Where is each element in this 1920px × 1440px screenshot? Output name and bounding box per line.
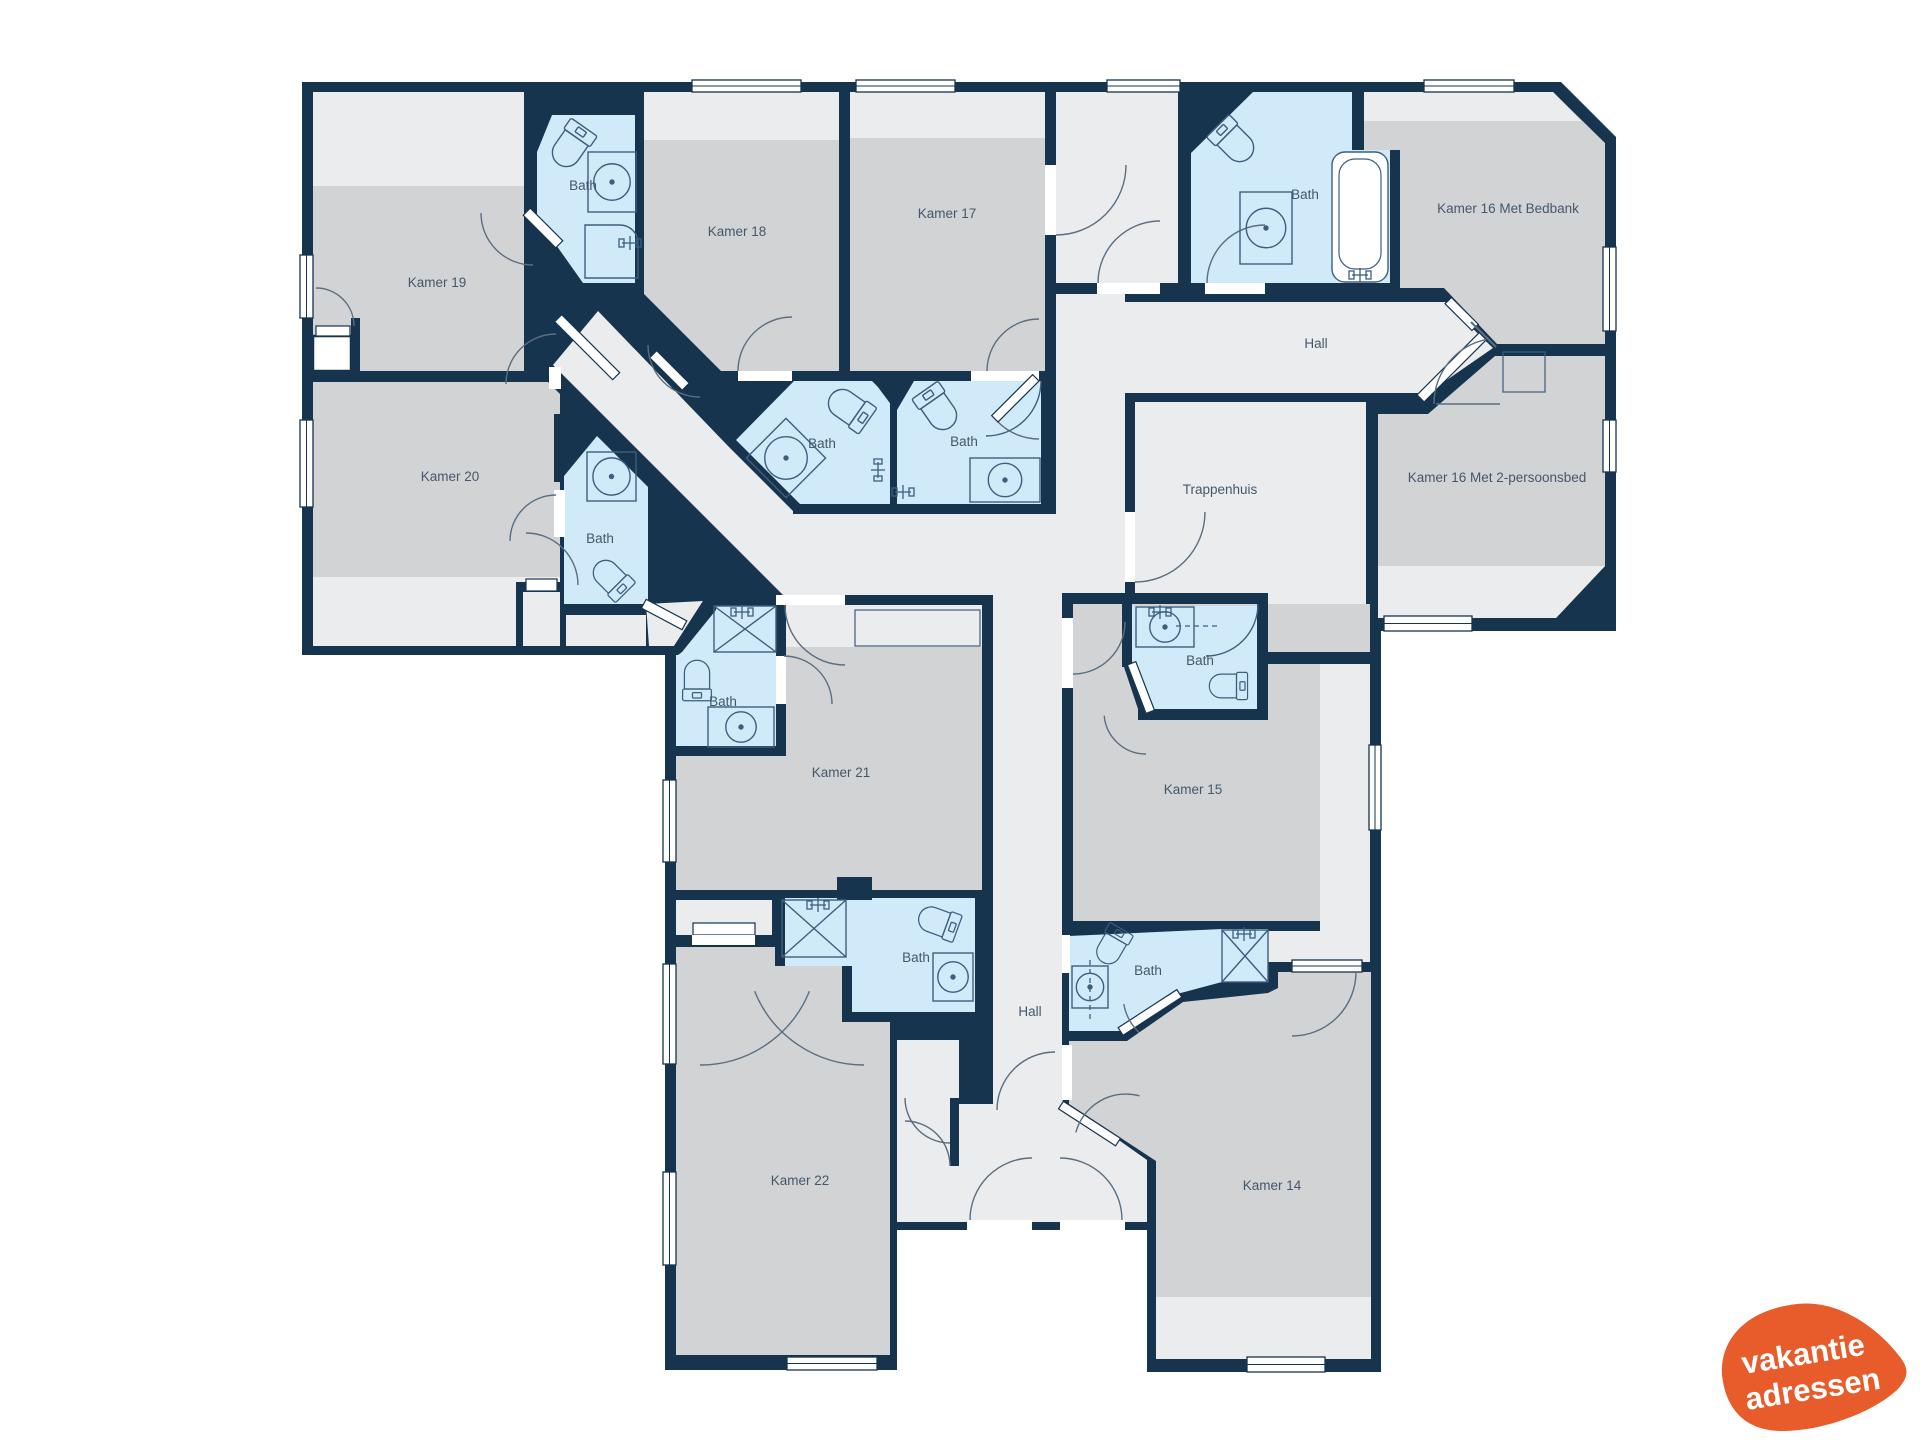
svg-text:Kamer 15: Kamer 15 xyxy=(1164,782,1223,797)
svg-text:Bath: Bath xyxy=(569,178,597,193)
svg-text:Kamer 20: Kamer 20 xyxy=(421,469,480,484)
svg-text:Bath: Bath xyxy=(808,436,836,451)
svg-text:Bath: Bath xyxy=(1186,653,1214,668)
svg-text:Kamer 18: Kamer 18 xyxy=(708,224,767,239)
svg-text:Bath: Bath xyxy=(586,531,614,546)
svg-text:Hall: Hall xyxy=(1304,336,1327,351)
svg-text:Bath: Bath xyxy=(950,434,978,449)
svg-text:Kamer 22: Kamer 22 xyxy=(771,1173,830,1188)
svg-text:Bath: Bath xyxy=(1134,963,1162,978)
svg-text:Kamer 16 Met Bedbank: Kamer 16 Met Bedbank xyxy=(1437,201,1579,216)
svg-text:Trappenhuis: Trappenhuis xyxy=(1183,482,1258,497)
svg-text:Kamer 14: Kamer 14 xyxy=(1243,1178,1302,1193)
svg-text:Bath: Bath xyxy=(1291,187,1319,202)
svg-text:Bath: Bath xyxy=(902,950,930,965)
svg-text:Kamer 17: Kamer 17 xyxy=(918,206,977,221)
svg-text:Kamer 21: Kamer 21 xyxy=(812,765,871,780)
svg-text:Bath: Bath xyxy=(709,694,737,709)
svg-text:Hall: Hall xyxy=(1018,1004,1041,1019)
svg-text:Kamer 19: Kamer 19 xyxy=(408,275,467,290)
svg-text:Kamer 16 Met 2-persoonsbed: Kamer 16 Met 2-persoonsbed xyxy=(1408,470,1587,485)
